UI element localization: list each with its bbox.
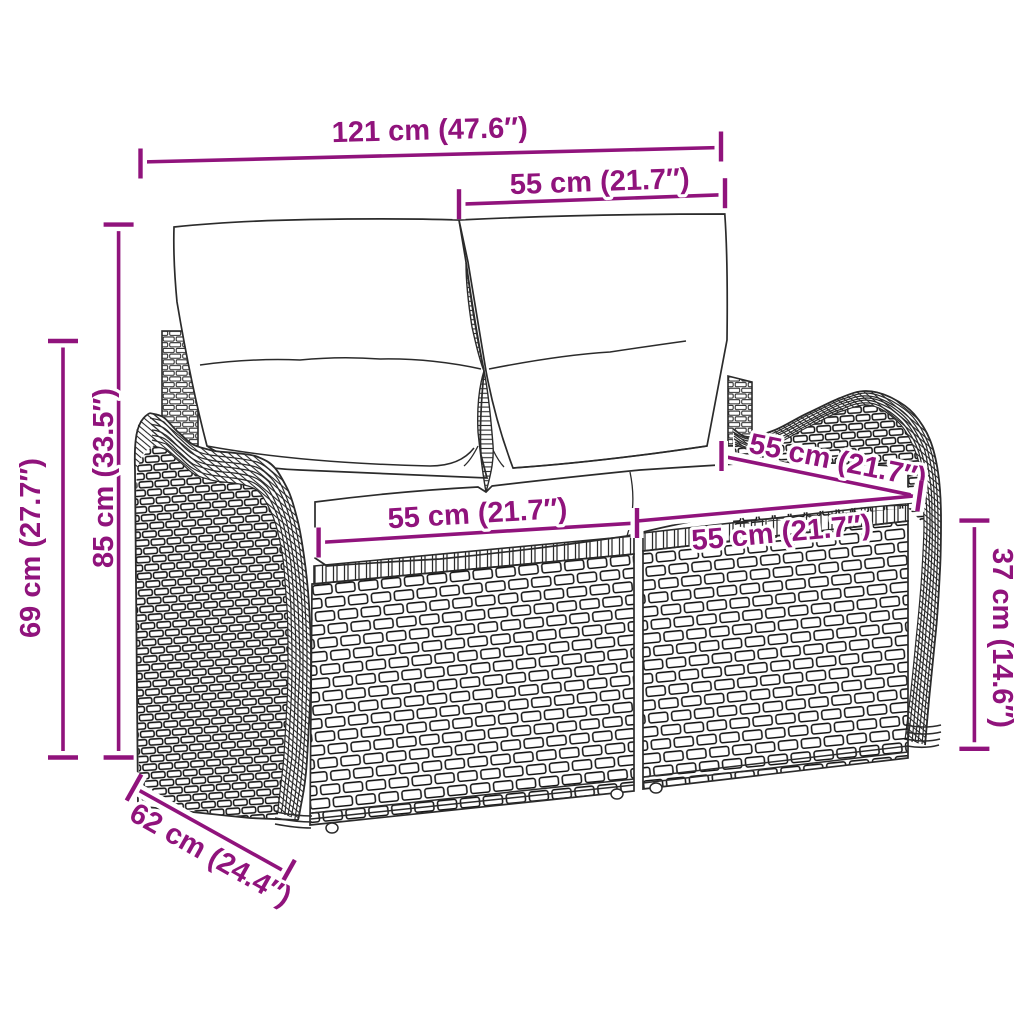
svg-text:55 cm (21.7″): 55 cm (21.7″) (509, 163, 690, 201)
svg-text:121 cm (47.6″): 121 cm (47.6″) (331, 112, 528, 149)
svg-text:69 cm (27.7″): 69 cm (27.7″) (15, 458, 47, 638)
svg-text:85 cm (33.5″): 85 cm (33.5″) (88, 388, 120, 568)
svg-text:37 cm (14.6″): 37 cm (14.6″) (986, 548, 1018, 728)
